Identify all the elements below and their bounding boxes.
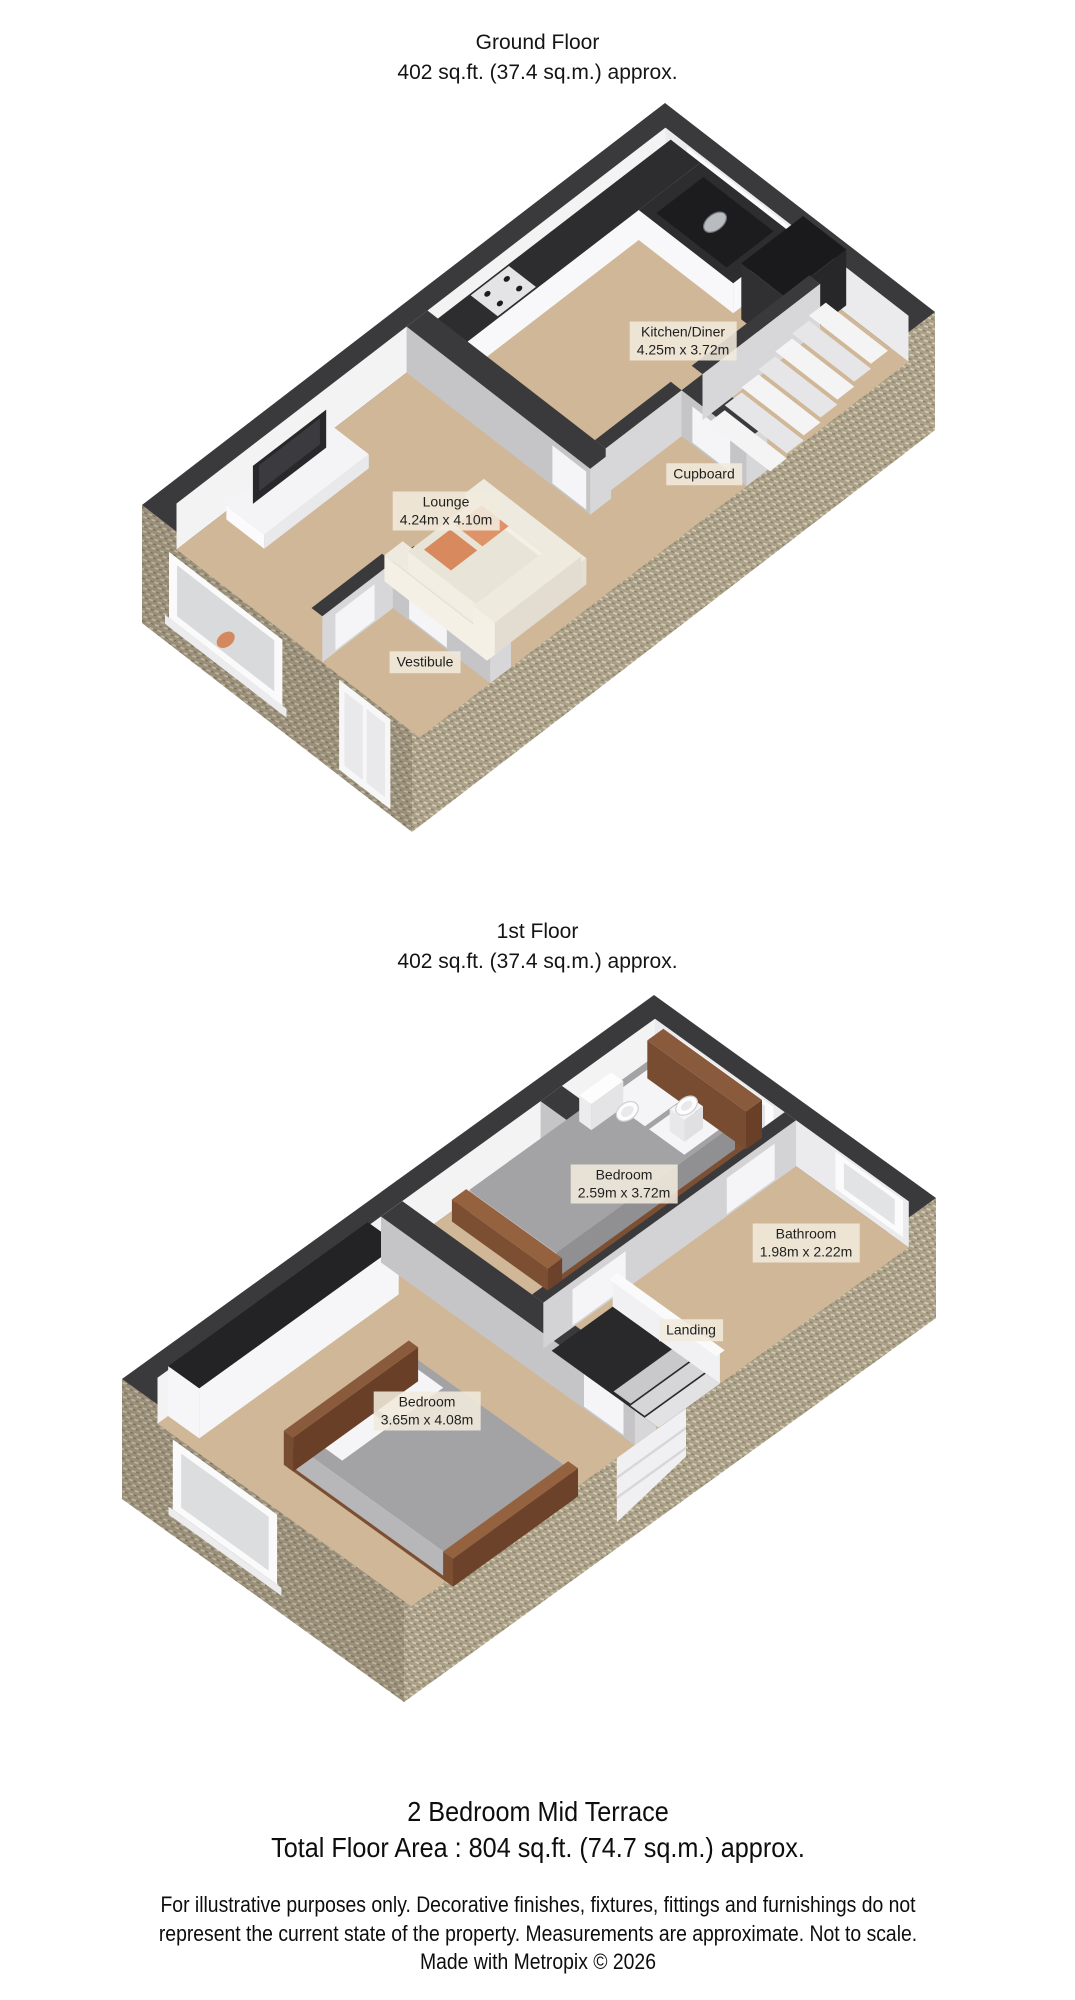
first-floor-title: 1st Floor xyxy=(397,917,677,947)
room-name: Lounge xyxy=(400,494,493,512)
first-floorplan-3d xyxy=(80,960,960,1740)
disclaimer-line-1: For illustrative purposes only. Decorati… xyxy=(158,1891,916,1920)
room-label-lounge: Lounge 4.24m x 4.10m xyxy=(393,492,500,531)
room-dims: 3.65m x 4.08m xyxy=(381,1411,474,1429)
room-dims: 4.25m x 3.72m xyxy=(637,341,730,359)
room-name: Kitchen/Diner xyxy=(637,324,730,342)
room-label-bedroom-1: Bedroom 3.65m x 4.08m xyxy=(374,1392,481,1431)
floorplan-page: Ground Floor 402 sq.ft. (37.4 sq.m.) app… xyxy=(0,0,1075,2000)
ground-floor-title: Ground Floor xyxy=(397,28,677,58)
room-label-cupboard: Cupboard xyxy=(666,463,742,485)
room-label-vestibule: Vestibule xyxy=(390,651,461,673)
room-label-bathroom: Bathroom 1.98m x 2.22m xyxy=(753,1224,860,1263)
metropix-credit: Made with Metropix © 2026 xyxy=(158,1948,916,1977)
room-label-landing: Landing xyxy=(659,1319,723,1341)
property-type: 2 Bedroom Mid Terrace xyxy=(271,1794,805,1830)
room-dims: 4.24m x 4.10m xyxy=(400,511,493,529)
room-label-bedroom-2: Bedroom 2.59m x 3.72m xyxy=(571,1165,678,1204)
footer-disclaimer: For illustrative purposes only. Decorati… xyxy=(158,1891,916,1977)
room-label-kitchen-diner: Kitchen/Diner 4.25m x 3.72m xyxy=(630,322,737,361)
total-floor-area: Total Floor Area : 804 sq.ft. (74.7 sq.m… xyxy=(271,1830,805,1866)
room-name: Bedroom xyxy=(381,1394,474,1412)
room-name: Bathroom xyxy=(760,1226,853,1244)
ground-floorplan-3d xyxy=(100,80,960,850)
ground-floor-heading: Ground Floor 402 sq.ft. (37.4 sq.m.) app… xyxy=(397,28,677,87)
room-dims: 2.59m x 3.72m xyxy=(578,1184,671,1202)
room-name: Vestibule xyxy=(397,653,454,671)
disclaimer-line-2: represent the current state of the prope… xyxy=(158,1920,916,1949)
room-name: Landing xyxy=(666,1321,716,1339)
room-dims: 1.98m x 2.22m xyxy=(760,1243,853,1261)
room-name: Bedroom xyxy=(578,1167,671,1185)
room-name: Cupboard xyxy=(673,465,735,483)
footer-summary: 2 Bedroom Mid Terrace Total Floor Area :… xyxy=(271,1794,805,1866)
